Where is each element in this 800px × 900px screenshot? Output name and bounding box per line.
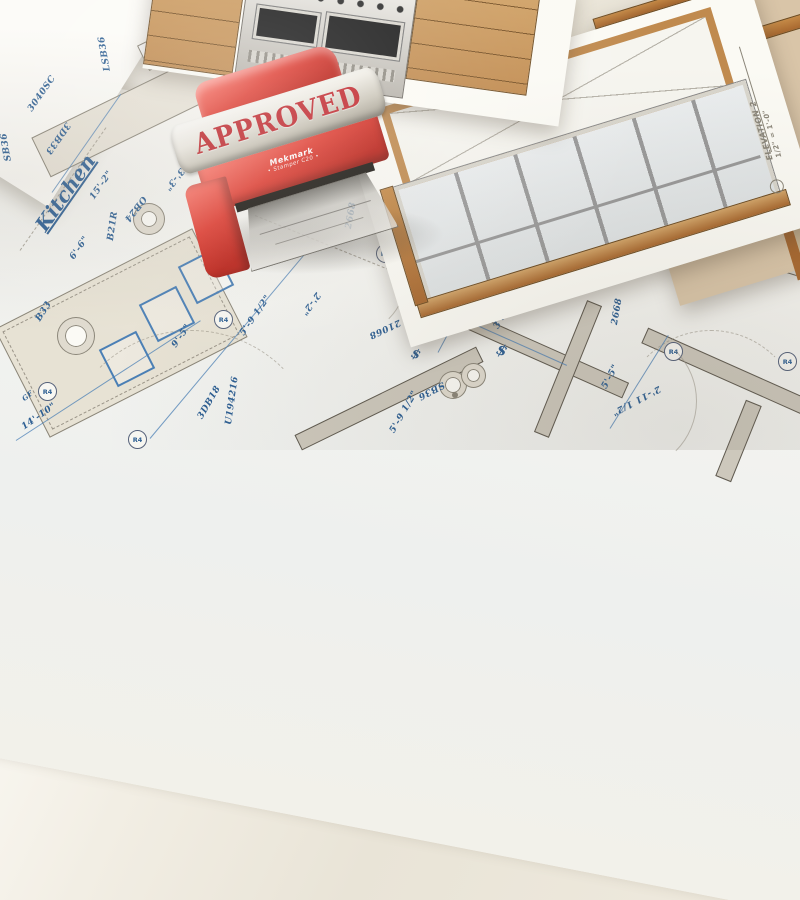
cabinet-drawer-lines [144, 0, 249, 76]
cooktop-circle [58, 318, 94, 354]
wiring-arc [60, 330, 322, 592]
cabinet-drawer-lines [407, 0, 541, 95]
cabinet-right [406, 0, 542, 96]
cabinet-left [143, 0, 250, 77]
recessed-light-symbol: R4 [214, 310, 233, 329]
oven-window-left [253, 4, 321, 47]
recessed-light-symbol: R4 [38, 382, 57, 401]
